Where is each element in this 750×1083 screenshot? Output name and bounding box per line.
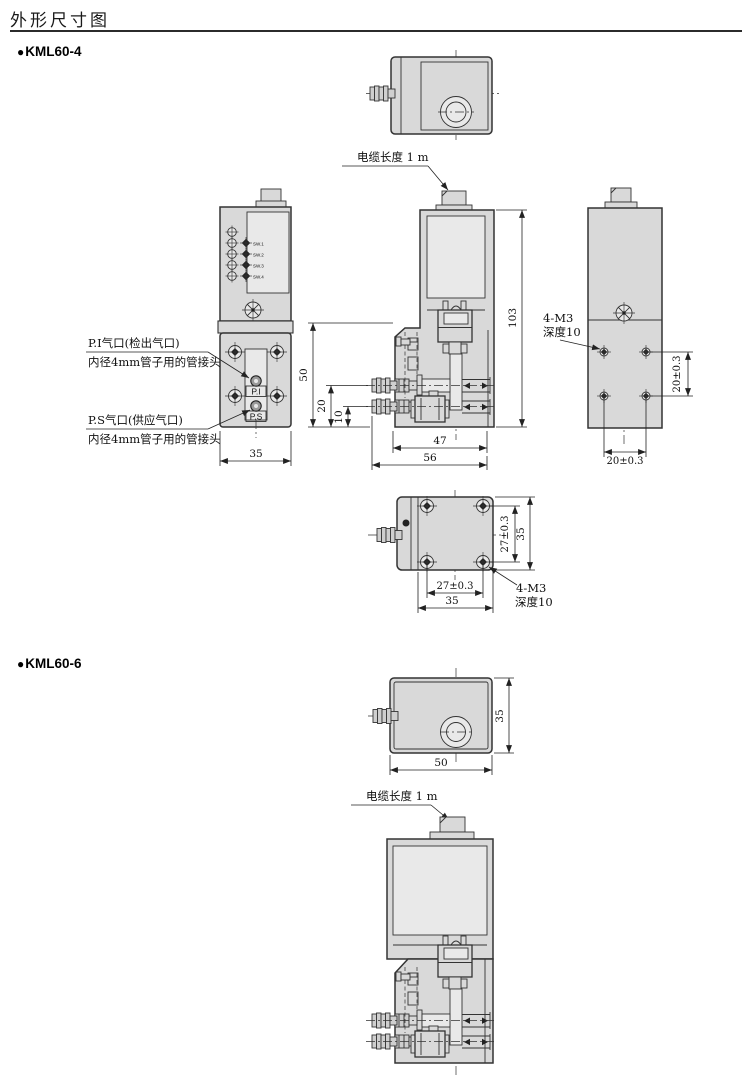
kml60-6-top-view: 35 50 <box>368 668 514 775</box>
m3-rear-annotation-line2: 深度10 <box>543 325 581 339</box>
pi-port-label: P.I <box>251 387 260 397</box>
page: 外形尺寸图 ●KML60-4 ●KML60-6 <box>0 0 750 1083</box>
kml60-6-side-view <box>366 817 496 1078</box>
sw1-label: SW.1 <box>253 242 264 247</box>
kml60-4-bottom-view: 27±0.3 35 27±0.3 35 4-M3 深度10 <box>368 490 553 613</box>
cable-length-label: 电缆长度 1 m <box>366 789 438 803</box>
pi-annotation-sub: 内径4mm管子用的管接头 <box>88 355 221 369</box>
kml60-4-top-view <box>366 50 502 140</box>
m3-bottom-annotation-line2: 深度10 <box>515 595 553 609</box>
kml60-4-side-view: 103 50 20 10 47 56 <box>298 191 527 470</box>
cable-gland <box>442 191 466 205</box>
dim-front-width: 35 <box>249 448 262 460</box>
cable-gland <box>261 189 281 202</box>
dim-rear-hole-pitch-h: 20±0.3 <box>606 456 643 467</box>
dim-rear-hole-pitch-v: 20±0.3 <box>672 355 683 392</box>
dim-bottom-hole-pitch-v: 27±0.3 <box>500 515 511 552</box>
sw3-label: SW.3 <box>253 264 264 269</box>
m3-rear-annotation-line1: 4-M3 <box>543 311 573 325</box>
dim-bottom-width: 35 <box>445 595 458 607</box>
ps-annotation-sub: 内径4mm管子用的管接头 <box>88 432 221 446</box>
ps-annotation-title: P.S气口(供应气口) <box>88 413 183 427</box>
dim-upper-port-height: 20 <box>316 399 328 412</box>
pi-annotation-title: P.I气口(检出气口) <box>88 336 180 350</box>
dim-top-height: 35 <box>494 709 506 722</box>
dim-top-width: 50 <box>434 757 447 769</box>
cable-length-label: 电缆长度 1 m <box>357 150 429 164</box>
kml60-4-cable-annotation: 电缆长度 1 m <box>342 150 448 190</box>
dim-depth-inner: 47 <box>433 435 446 447</box>
sw2-label: SW.2 <box>253 253 264 258</box>
dim-bottom-hole-pitch-h: 27±0.3 <box>436 581 473 592</box>
technical-drawing-canvas: 电缆长度 1 m SW.1 SW.2 SW.3 SW.4 <box>0 0 750 1083</box>
dim-lower-port-height: 10 <box>333 410 345 423</box>
kml60-6-cable-annotation: 电缆长度 1 m <box>351 789 449 820</box>
dim-lower-height: 50 <box>298 368 310 381</box>
dim-overall-height: 103 <box>507 308 519 328</box>
dim-depth-overall: 56 <box>423 452 437 464</box>
sw4-label: SW.4 <box>253 275 264 280</box>
kml60-4-front-view: SW.1 SW.2 SW.3 SW.4 P.I P.S 35 <box>218 189 293 466</box>
dim-bottom-depth: 35 <box>515 527 527 540</box>
m3-bottom-annotation-line1: 4-M3 <box>516 581 546 595</box>
kml60-4-rear-view: 4-M3 深度10 20±0.3 20±0.3 <box>543 188 693 467</box>
